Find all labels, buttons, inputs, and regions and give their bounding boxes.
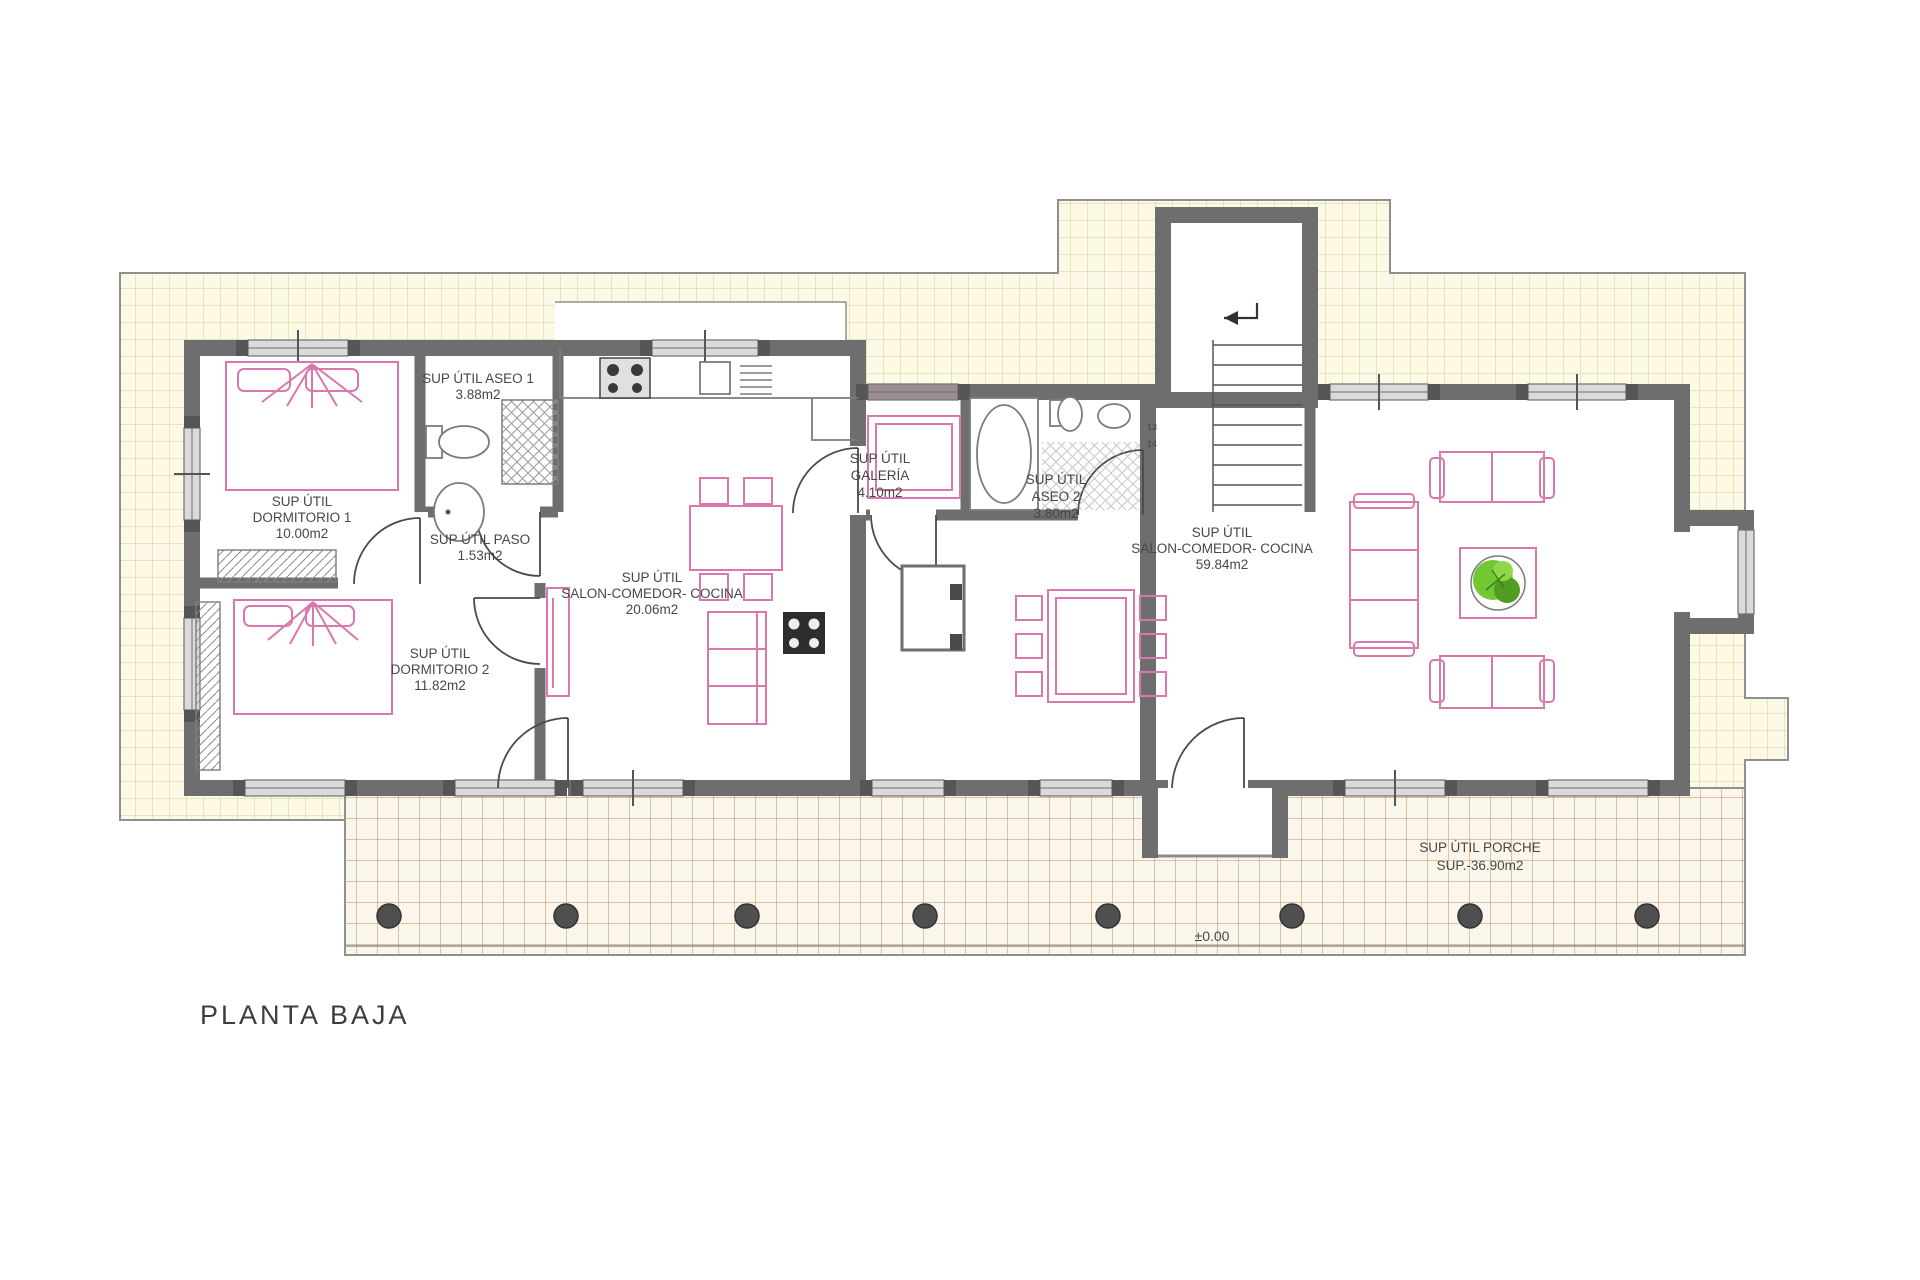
sofa-icon bbox=[1350, 494, 1418, 656]
window bbox=[856, 384, 970, 400]
svg-text:SUP.-36.90m2: SUP.-36.90m2 bbox=[1437, 858, 1524, 873]
sink-icon bbox=[1098, 404, 1130, 428]
svg-text:DORMITORIO 2: DORMITORIO 2 bbox=[391, 662, 490, 677]
svg-text:ASEO 2: ASEO 2 bbox=[1032, 489, 1081, 504]
svg-text:10.00m2: 10.00m2 bbox=[276, 526, 329, 541]
room-label-aseo2: SUP ÚTIL ASEO 2 3.80m2 bbox=[1026, 472, 1087, 521]
svg-text:SUP ÚTIL: SUP ÚTIL bbox=[272, 494, 333, 509]
wardrobe-icon bbox=[218, 550, 336, 582]
entry-vestibule-wall-left bbox=[1142, 788, 1158, 858]
svg-text:SUP ÚTIL: SUP ÚTIL bbox=[410, 646, 471, 661]
svg-text:SUP ÚTIL PASO: SUP ÚTIL PASO bbox=[430, 532, 530, 547]
window bbox=[860, 780, 956, 796]
svg-text:1.53m2: 1.53m2 bbox=[457, 548, 502, 563]
tv-cabinet-icon bbox=[547, 588, 569, 696]
window bbox=[1028, 780, 1124, 796]
level-mark: ±0.00 bbox=[1195, 928, 1230, 944]
svg-text:59.84m2: 59.84m2 bbox=[1196, 557, 1249, 572]
wardrobe-icon bbox=[196, 602, 220, 770]
toilet-icon bbox=[1058, 397, 1082, 431]
svg-text:DORMITORIO 1: DORMITORIO 1 bbox=[253, 510, 352, 525]
entry-vestibule bbox=[1142, 788, 1288, 858]
svg-text:4.10m2: 4.10m2 bbox=[857, 485, 902, 500]
bed-icon bbox=[234, 600, 392, 714]
svg-text:SUP ÚTIL: SUP ÚTIL bbox=[622, 570, 683, 585]
porch-paving bbox=[345, 788, 1745, 955]
svg-text:SUP ÚTIL: SUP ÚTIL bbox=[1192, 525, 1253, 540]
kitchen-island bbox=[902, 566, 964, 650]
stove-icon bbox=[600, 358, 650, 398]
svg-text:SUP ÚTIL ASEO 1: SUP ÚTIL ASEO 1 bbox=[422, 371, 534, 386]
stair-tread-number: 13 bbox=[1147, 422, 1157, 432]
svg-text:3.88m2: 3.88m2 bbox=[455, 387, 500, 402]
svg-text:SUP ÚTIL PORCHE: SUP ÚTIL PORCHE bbox=[1419, 840, 1541, 855]
sofa-icon bbox=[1430, 452, 1554, 502]
svg-text:SALON-COMEDOR- COCINA: SALON-COMEDOR- COCINA bbox=[1131, 541, 1313, 556]
bathtub-icon bbox=[977, 405, 1031, 503]
entry-vestibule-wall-right bbox=[1272, 788, 1288, 858]
window bbox=[1738, 530, 1754, 614]
porch-column bbox=[913, 904, 937, 928]
shower-icon bbox=[502, 400, 558, 484]
stair-block bbox=[1163, 215, 1310, 400]
floor-plan-drawing: 13 14 bbox=[0, 0, 1920, 1280]
porch-column bbox=[1458, 904, 1482, 928]
wood-stove-icon bbox=[783, 612, 825, 654]
window bbox=[1536, 780, 1660, 796]
room-label-galeria: SUP ÚTIL GALERÍA 4.10m2 bbox=[850, 451, 911, 500]
svg-text:SALON-COMEDOR- COCINA: SALON-COMEDOR- COCINA bbox=[561, 586, 743, 601]
svg-text:11.82m2: 11.82m2 bbox=[414, 678, 466, 693]
floor-plan-sheet: 13 14 bbox=[0, 0, 1920, 1280]
window bbox=[233, 780, 357, 796]
porch-column bbox=[1635, 904, 1659, 928]
svg-text:GALERÍA: GALERÍA bbox=[851, 468, 910, 483]
sofa-icon bbox=[708, 612, 766, 724]
svg-text:20.06m2: 20.06m2 bbox=[626, 602, 679, 617]
porch-column bbox=[735, 904, 759, 928]
sink-drain bbox=[446, 510, 451, 515]
svg-text:SUP ÚTIL: SUP ÚTIL bbox=[1026, 472, 1087, 487]
bay-window-opening bbox=[1672, 532, 1692, 612]
bed-icon bbox=[226, 362, 398, 490]
kitchen-sink-icon bbox=[700, 362, 730, 394]
svg-text:SUP ÚTIL: SUP ÚTIL bbox=[850, 451, 911, 466]
porch-column bbox=[377, 904, 401, 928]
porch-column bbox=[1280, 904, 1304, 928]
stair-tread-number: 14 bbox=[1147, 439, 1157, 449]
porch-column bbox=[1096, 904, 1120, 928]
toilet-icon bbox=[439, 426, 489, 458]
porch-column bbox=[554, 904, 578, 928]
window bbox=[443, 780, 567, 796]
svg-text:3.80m2: 3.80m2 bbox=[1033, 506, 1078, 521]
sofa-icon bbox=[1430, 656, 1554, 708]
plan-title: PLANTA BAJA bbox=[200, 1000, 410, 1030]
